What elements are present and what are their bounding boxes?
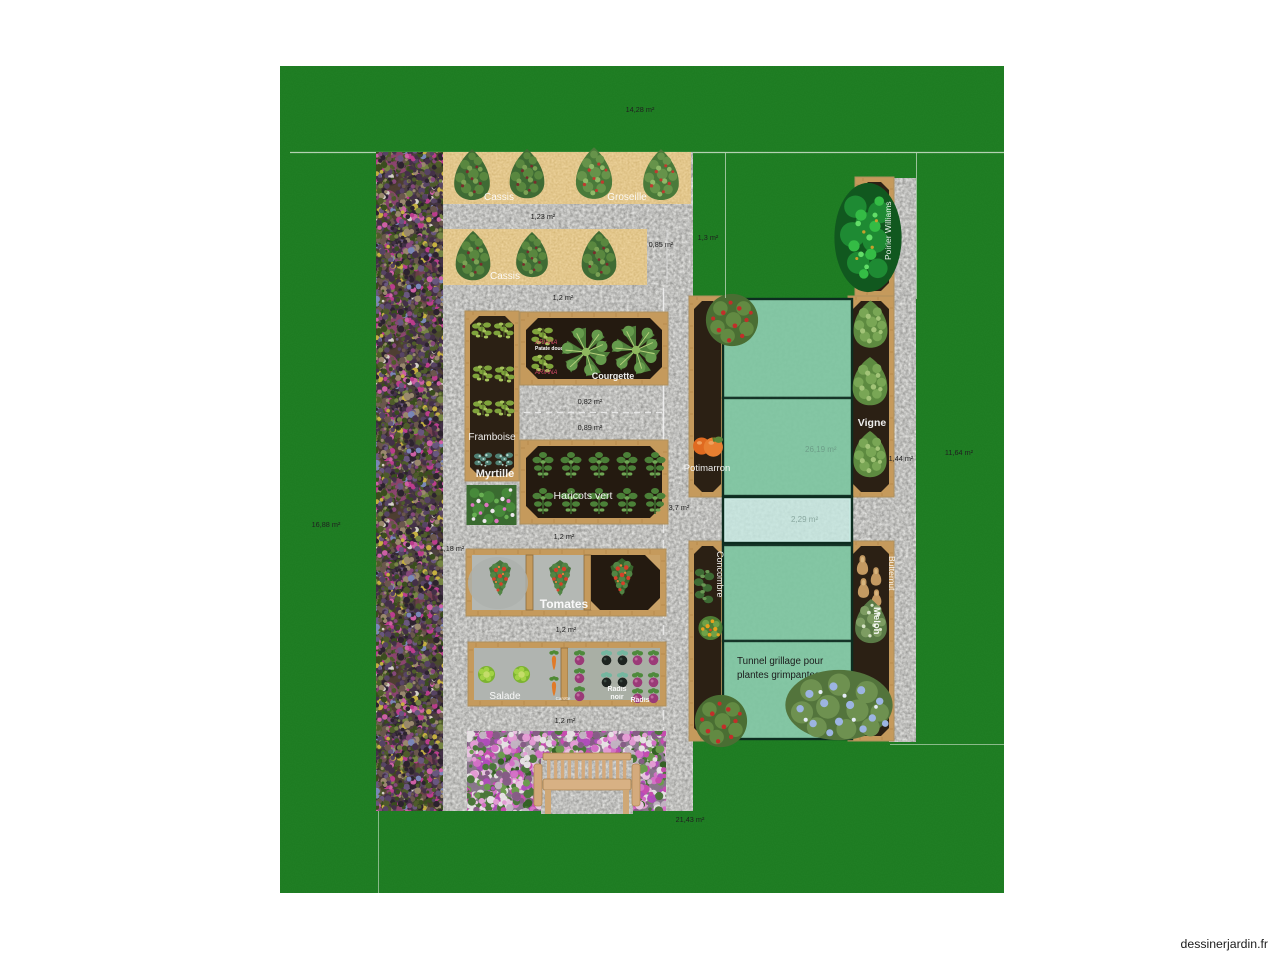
- svg-text:Potimarron: Potimarron: [684, 463, 730, 474]
- svg-text:Courgette: Courgette: [592, 371, 635, 381]
- svg-text:Salade: Salade: [489, 691, 521, 702]
- svg-text:21,43 m²: 21,43 m²: [676, 815, 705, 824]
- svg-text:Poirier Williams: Poirier Williams: [883, 201, 893, 260]
- svg-text:Radis: Radis: [607, 686, 626, 693]
- svg-text:16,88 m²: 16,88 m²: [312, 520, 341, 529]
- svg-text:Vigne: Vigne: [858, 417, 887, 429]
- svg-text:Melon: Melon: [871, 607, 882, 635]
- svg-text:dessinerjardin.fr: dessinerjardin.fr: [1181, 937, 1268, 951]
- svg-text:Carotte: Carotte: [556, 696, 571, 701]
- svg-text:1,23 m²: 1,23 m²: [531, 212, 556, 221]
- svg-text:1,44 m²: 1,44 m²: [889, 454, 914, 463]
- svg-text:1,2 m²: 1,2 m²: [556, 625, 577, 634]
- svg-text:26,19 m²: 26,19 m²: [805, 445, 837, 454]
- svg-text:Butternut: Butternut: [887, 556, 897, 591]
- svg-text:Patate douce: Patate douce: [535, 346, 566, 352]
- svg-text:Cassis: Cassis: [484, 192, 514, 203]
- svg-text:Concombre: Concombre: [715, 551, 725, 598]
- svg-text:0,82 m²: 0,82 m²: [578, 397, 603, 406]
- svg-text:Haricots vert: Haricots vert: [554, 490, 613, 502]
- svg-text:0,85 m²: 0,85 m²: [649, 240, 674, 249]
- svg-text:11,64 m²: 11,64 m²: [945, 448, 974, 457]
- svg-text:Radis: Radis: [630, 697, 649, 704]
- svg-text:0,89 m²: 0,89 m²: [578, 423, 603, 432]
- svg-text:noir: noir: [610, 694, 623, 701]
- svg-text:14,28 m²: 14,28 m²: [626, 105, 655, 114]
- svg-text:3,7 m²: 3,7 m²: [669, 503, 690, 512]
- svg-text:Tunnel grillage pour: Tunnel grillage pour: [737, 656, 824, 667]
- svg-text:Tomates: Tomates: [540, 597, 589, 611]
- svg-text:1,2 m²: 1,2 m²: [554, 532, 575, 541]
- svg-text:1,3 m²: 1,3 m²: [698, 233, 719, 242]
- svg-text:1,2 m²: 1,2 m²: [555, 716, 576, 725]
- svg-text:Cassis: Cassis: [490, 271, 520, 282]
- svg-text:2,29 m²: 2,29 m²: [791, 515, 818, 524]
- svg-text:Framboise: Framboise: [468, 432, 516, 443]
- svg-text:Groseille: Groseille: [607, 192, 647, 203]
- svg-text:1,18 m²: 1,18 m²: [440, 544, 465, 553]
- svg-text:ARIANA: ARIANA: [534, 370, 557, 376]
- svg-text:1,2 m²: 1,2 m²: [553, 293, 574, 302]
- svg-text:Myrtille: Myrtille: [476, 468, 515, 480]
